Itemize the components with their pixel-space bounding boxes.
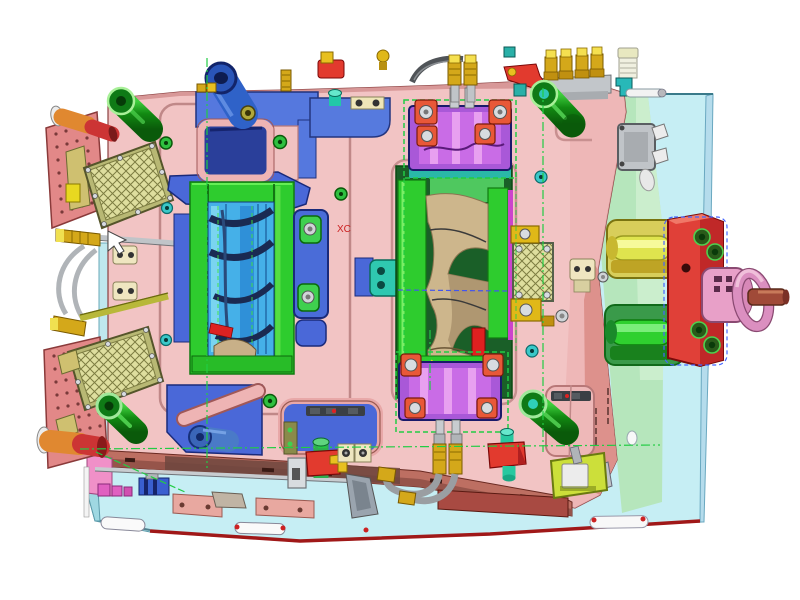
svg-text:XC: XC [337, 224, 351, 235]
